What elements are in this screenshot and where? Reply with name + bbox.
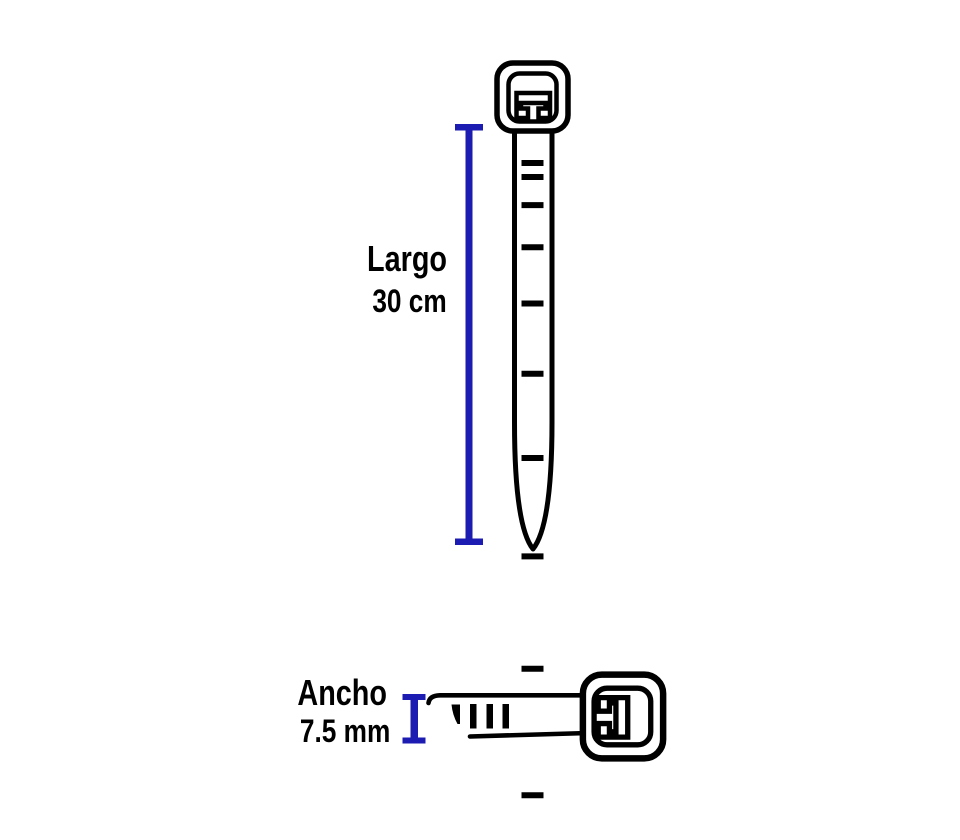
cable-tie-horizontal — [429, 675, 664, 759]
length-label: Largo — [367, 241, 447, 277]
diagram-canvas: Largo 30 cm Ancho 7.5 mm — [0, 0, 960, 840]
width-label: Ancho — [297, 675, 387, 711]
cable-tie-strap-top-edge — [429, 695, 606, 703]
ancho-dimension-bottom-cap — [403, 738, 426, 744]
cable-tie-diagram — [0, 0, 960, 840]
largo-dimension-bottom-cap — [455, 539, 483, 546]
largo-dimension-bar — [466, 128, 473, 540]
largo-dimension-line — [455, 124, 483, 545]
cable-tie-head — [497, 63, 568, 131]
ancho-dimension-bar — [411, 697, 419, 740]
cable-tie-strap — [515, 126, 553, 549]
length-value: 30 cm — [373, 285, 447, 317]
cable-tie-head — [583, 675, 663, 759]
cable-tie-teeth-edge — [452, 704, 510, 729]
width-value: 7.5 mm — [300, 715, 390, 747]
ancho-dimension-line — [403, 694, 426, 744]
